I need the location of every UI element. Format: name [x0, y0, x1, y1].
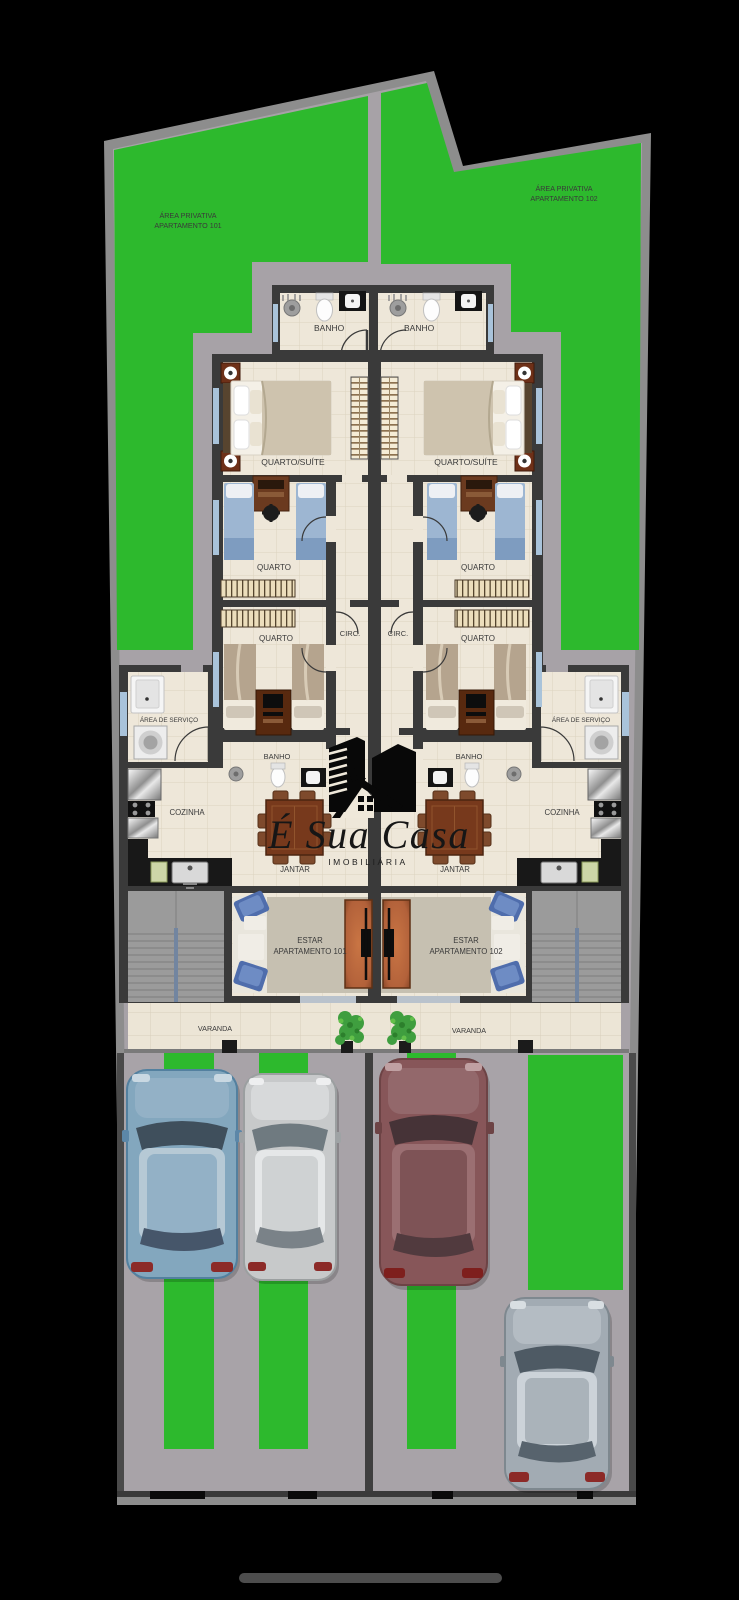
svg-text:VARANDA: VARANDA: [198, 1024, 232, 1033]
svg-text:ÁREA DE SERVIÇO: ÁREA DE SERVIÇO: [140, 715, 198, 724]
svg-text:ESTAR: ESTAR: [297, 936, 323, 945]
svg-text:ESTAR: ESTAR: [453, 936, 479, 945]
svg-text:APARTAMENTO 102: APARTAMENTO 102: [429, 947, 502, 956]
svg-text:ÁREA DE SERVIÇO: ÁREA DE SERVIÇO: [552, 715, 610, 724]
svg-text:QUARTO/SUÍTE: QUARTO/SUÍTE: [434, 457, 498, 467]
svg-text:QUARTO/SUÍTE: QUARTO/SUÍTE: [261, 457, 325, 467]
svg-text:IMOBILIÁRIA: IMOBILIÁRIA: [328, 857, 408, 867]
svg-text:BANHO: BANHO: [264, 752, 291, 761]
svg-text:COZINHA: COZINHA: [169, 808, 205, 817]
svg-text:ÁREA PRIVATIVA: ÁREA PRIVATIVA: [159, 211, 216, 220]
svg-text:APARTAMENTO 101: APARTAMENTO 101: [154, 221, 221, 230]
svg-text:BANHO: BANHO: [314, 323, 345, 333]
svg-text:JANTAR: JANTAR: [440, 865, 470, 874]
svg-text:QUARTO: QUARTO: [257, 563, 291, 572]
svg-text:JANTAR: JANTAR: [280, 865, 310, 874]
svg-text:BANHO: BANHO: [456, 752, 483, 761]
svg-text:APARTAMENTO 102: APARTAMENTO 102: [530, 194, 597, 203]
svg-text:COZINHA: COZINHA: [544, 808, 580, 817]
svg-text:APARTAMENTO 101: APARTAMENTO 101: [273, 947, 346, 956]
svg-text:QUARTO: QUARTO: [461, 634, 495, 643]
svg-text:É Sua Casa: É Sua Casa: [267, 812, 470, 857]
svg-text:QUARTO: QUARTO: [259, 634, 293, 643]
svg-text:QUARTO: QUARTO: [461, 563, 495, 572]
svg-text:ÁREA PRIVATIVA: ÁREA PRIVATIVA: [535, 184, 592, 193]
svg-text:VARANDA: VARANDA: [452, 1026, 486, 1035]
svg-text:BANHO: BANHO: [404, 323, 435, 333]
